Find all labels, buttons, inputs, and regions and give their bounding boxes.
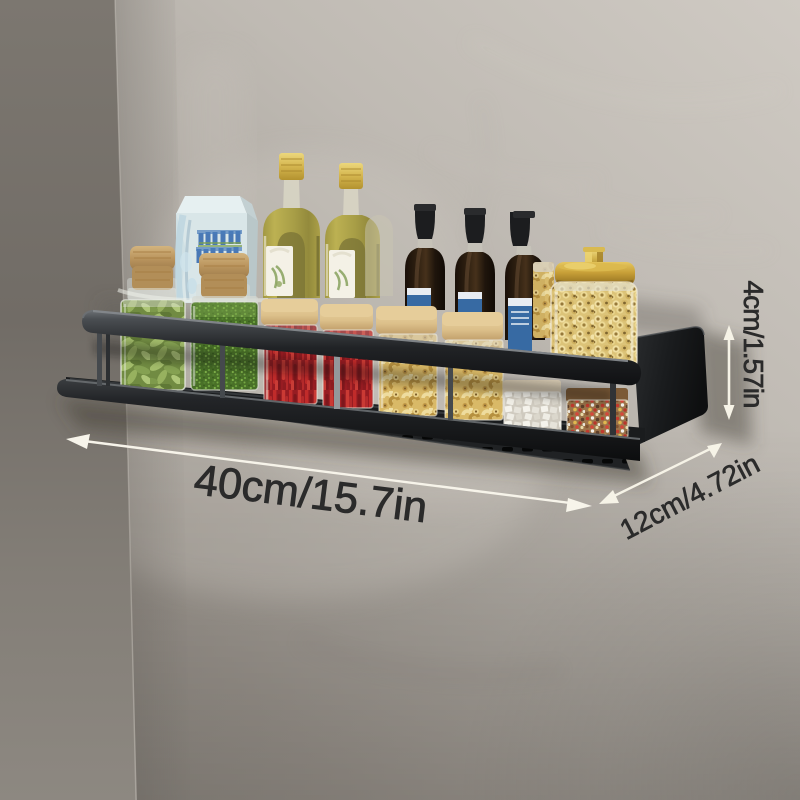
svg-text:4cm/1.57in: 4cm/1.57in [738, 281, 769, 408]
